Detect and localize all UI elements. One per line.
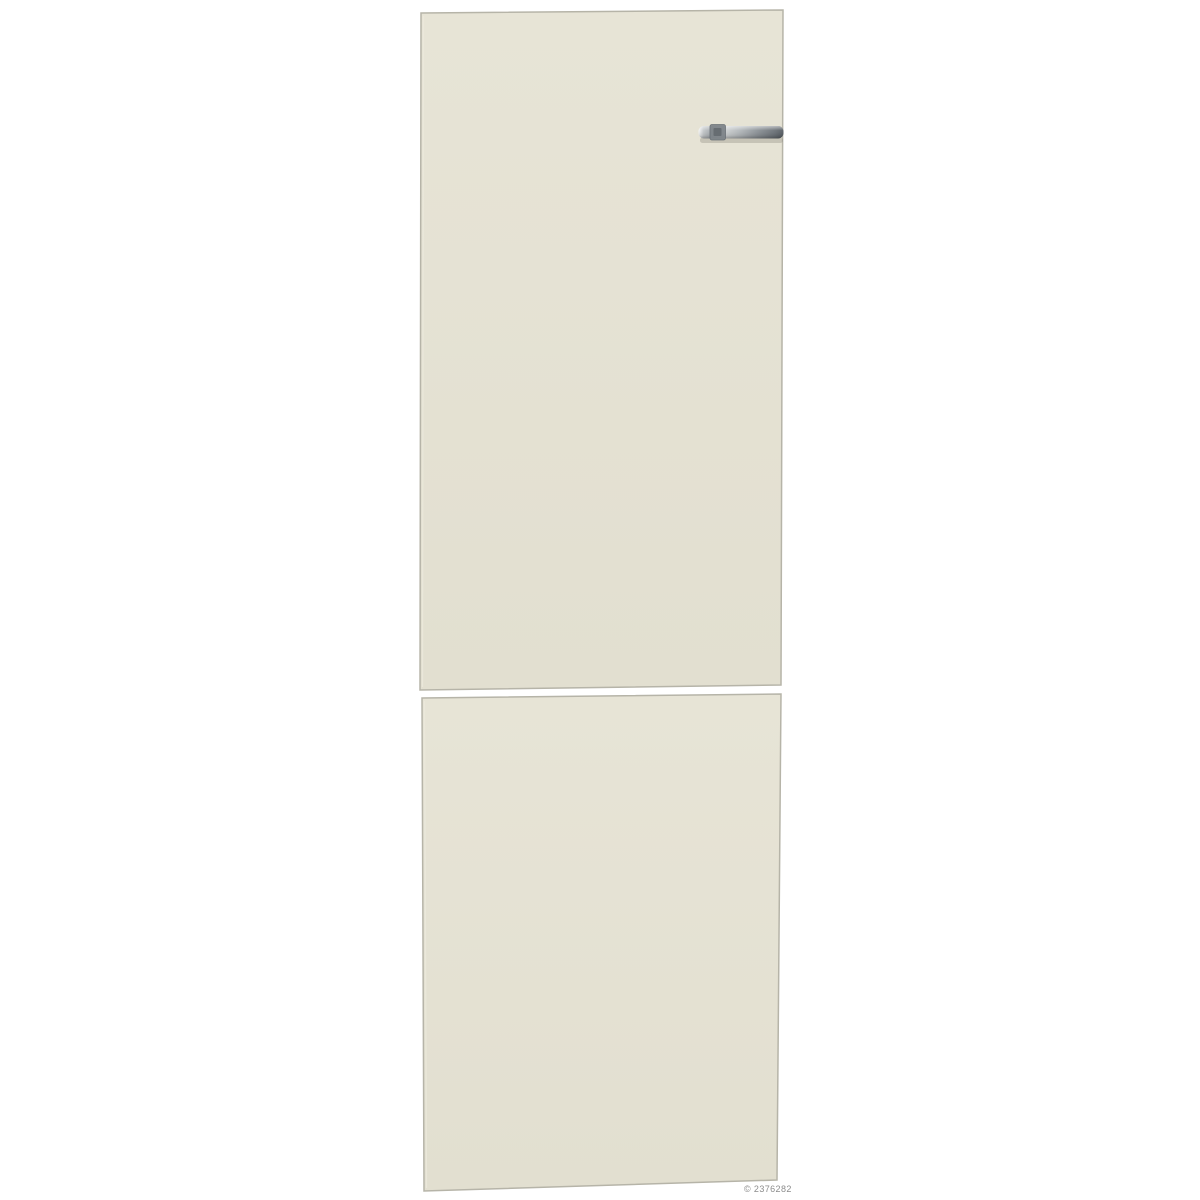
refrigerator-door-panel-photo: © 2376282 — [0, 0, 1200, 1200]
lower-door-panel — [422, 694, 781, 1191]
upper-door-panel — [420, 10, 783, 690]
handle-mount-detail — [714, 128, 722, 136]
product-image-canvas: © 2376282 — [0, 0, 1200, 1200]
watermark-text: © 2376282 — [744, 1184, 792, 1194]
